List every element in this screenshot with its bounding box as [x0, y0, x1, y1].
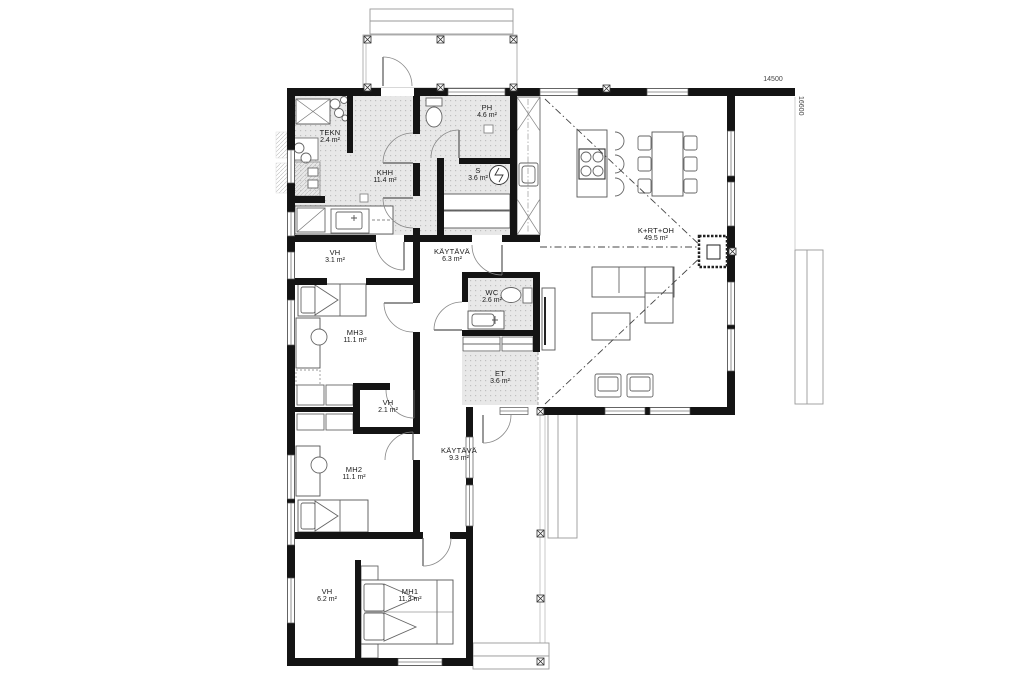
room-label-vh-2: VH2.1 m²	[378, 398, 398, 416]
room-label-mh1: MH111.3 m²	[398, 587, 421, 605]
room-label-krtoh: K+RT+OH49.5 m²	[638, 226, 674, 244]
room-label-vh-1: VH3.1 m²	[325, 248, 345, 266]
sofa-set	[542, 267, 674, 397]
kitchen-counter	[517, 97, 540, 235]
toilet-bowl	[426, 107, 442, 127]
room-label-ph: PH4.6 m²	[477, 103, 497, 121]
room-label-mh2: MH211.1 m²	[342, 465, 365, 483]
fireplace-icon	[699, 236, 727, 267]
toilet-bowl	[501, 288, 521, 303]
bar-stool	[615, 132, 624, 150]
room-label-tekn: TEKN2.4 m²	[320, 128, 341, 146]
sauna-bench	[441, 194, 510, 210]
coffee-table	[592, 313, 630, 340]
room-label-vh-3: VH6.2 m²	[317, 587, 337, 605]
floor-plan: TEKN2.4 m² KHH11.4 m² PH4.6 m² S3.6 m² K…	[0, 0, 1024, 683]
chair	[311, 329, 327, 345]
floor-drain	[484, 125, 493, 133]
top-porch	[363, 9, 517, 88]
tv-bench	[542, 288, 555, 350]
bedroom2-furniture	[296, 446, 368, 532]
plan-graphics	[0, 0, 1024, 683]
bar-stool	[615, 178, 624, 196]
sauna-bench	[441, 211, 510, 228]
hall-closet	[463, 337, 533, 351]
toilet-tank	[523, 288, 532, 303]
room-label-s: S3.6 m²	[468, 166, 488, 184]
toilet-tank	[426, 98, 442, 106]
chair	[311, 457, 327, 473]
room-label-et: ET3.6 m²	[490, 369, 510, 387]
entrance-steps	[473, 643, 549, 656]
room-label-kaytava-1: KÄYTÄVÄ6.3 m²	[434, 247, 470, 265]
nightstand	[361, 644, 378, 658]
bar-stool	[615, 155, 624, 173]
sofa-chaise	[645, 267, 673, 323]
dimension-height-label: 16600	[797, 96, 804, 115]
dimension-width-label: 14500	[750, 76, 796, 83]
floor-drain	[360, 194, 368, 202]
nightstand	[361, 566, 378, 580]
east-porch	[473, 410, 577, 669]
dining-table	[652, 132, 683, 196]
room-label-wc: WC2.6 m²	[482, 288, 502, 306]
right-terrace	[795, 97, 823, 404]
dining-set	[638, 132, 697, 196]
room-label-mh3: MH311.1 m²	[343, 328, 366, 346]
door-gap	[381, 88, 414, 96]
deck	[548, 410, 577, 538]
kitchen-island	[577, 130, 624, 197]
porch-bench	[370, 9, 513, 34]
bedroom1-furniture	[361, 566, 453, 658]
room-label-khh: KHH11.4 m²	[373, 168, 396, 186]
room-label-kaytava-2: KÄYTÄVÄ9.3 m²	[441, 446, 477, 464]
